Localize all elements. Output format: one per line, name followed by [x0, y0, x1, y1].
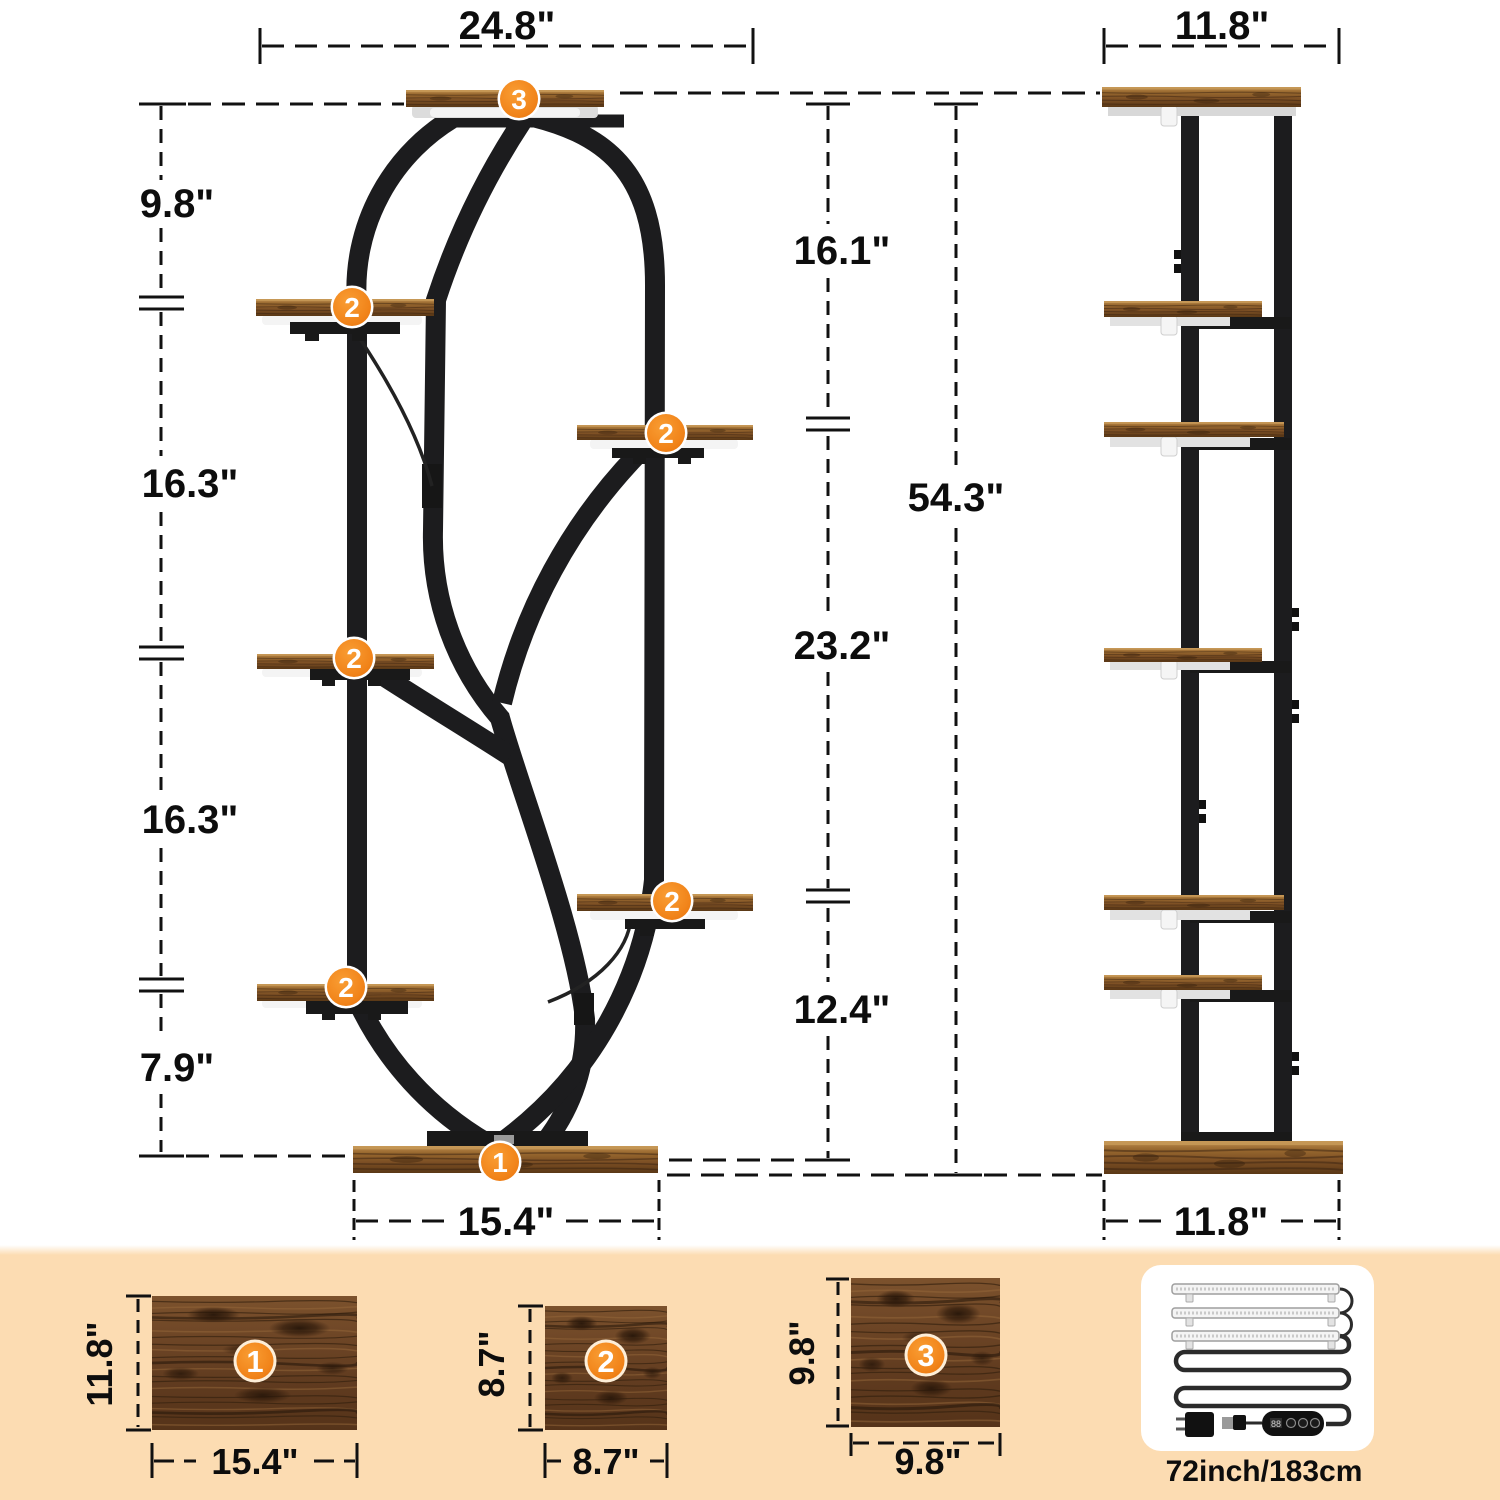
svg-text:2: 2	[658, 418, 674, 449]
svg-text:72inch/183cm: 72inch/183cm	[1166, 1455, 1363, 1488]
svg-text:16.3": 16.3"	[142, 462, 239, 506]
svg-text:2: 2	[346, 643, 362, 674]
svg-text:7.9": 7.9"	[140, 1046, 215, 1090]
svg-text:2: 2	[597, 1344, 614, 1379]
svg-text:24.8": 24.8"	[459, 4, 556, 48]
svg-text:11.8": 11.8"	[79, 1321, 120, 1406]
svg-text:11.8": 11.8"	[1175, 4, 1270, 48]
svg-text:88: 88	[1271, 1419, 1281, 1429]
svg-text:9.8": 9.8"	[783, 1320, 822, 1385]
svg-text:16.3": 16.3"	[142, 798, 239, 842]
svg-text:12.4": 12.4"	[794, 988, 891, 1032]
svg-text:1: 1	[492, 1147, 508, 1178]
svg-text:2: 2	[338, 972, 354, 1003]
svg-text:2: 2	[344, 292, 360, 323]
svg-text:15.4": 15.4"	[211, 1441, 298, 1482]
svg-text:23.2": 23.2"	[794, 624, 891, 668]
svg-text:3: 3	[917, 1338, 934, 1373]
svg-text:11.8": 11.8"	[1174, 1200, 1269, 1244]
svg-text:9.8": 9.8"	[894, 1441, 961, 1482]
svg-text:54.3": 54.3"	[908, 476, 1005, 520]
svg-text:3: 3	[511, 84, 527, 115]
svg-text:8.7": 8.7"	[471, 1330, 512, 1397]
svg-text:8.7": 8.7"	[572, 1441, 639, 1482]
svg-text:2: 2	[664, 886, 680, 917]
svg-text:1: 1	[246, 1344, 263, 1379]
svg-text:16.1": 16.1"	[794, 229, 891, 273]
svg-text:9.8": 9.8"	[140, 182, 215, 226]
svg-text:15.4": 15.4"	[458, 1200, 555, 1244]
